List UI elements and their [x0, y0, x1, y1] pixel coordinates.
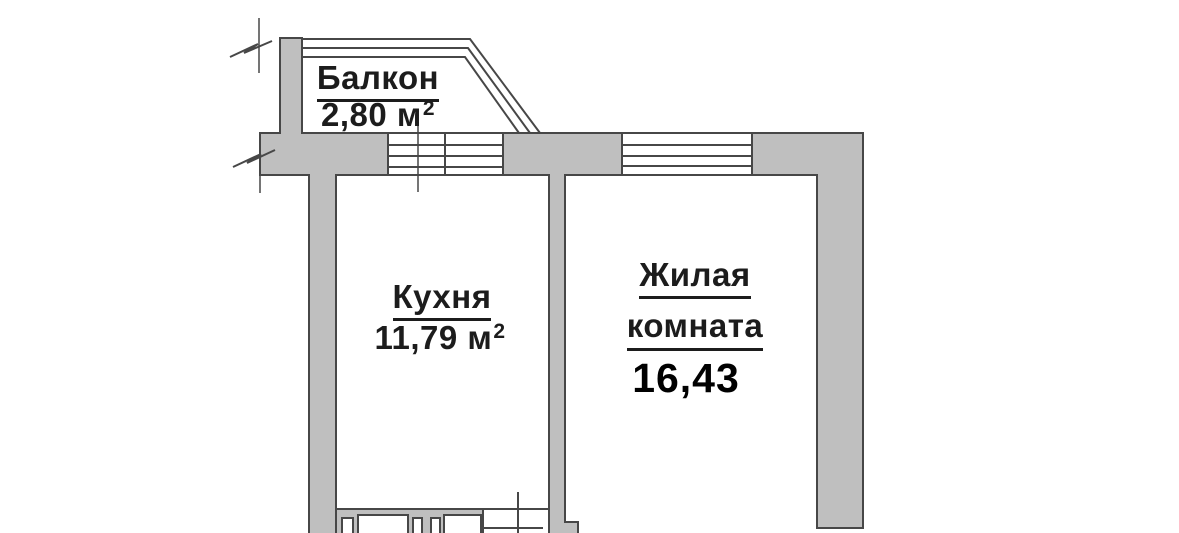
fixture-small-3	[431, 518, 440, 533]
fixture-small-2	[413, 518, 422, 533]
floor-plan: Балкон 2,80 м2 Кухня 11,79 м2 Жилая комн…	[0, 0, 1179, 533]
living-room-name-line1: Жилая	[639, 257, 750, 299]
fixture-wide-2	[444, 515, 481, 533]
fixture-wide-1	[358, 515, 408, 533]
kitchen-area-superscript: 2	[493, 320, 505, 343]
kitchen-door-lines	[483, 492, 543, 533]
living-room-label: Жилая комната	[616, 257, 774, 360]
kitchen-name-text: Кухня	[393, 279, 492, 321]
living-room-area-value: 16,43	[632, 355, 740, 401]
kitchen-label: Кухня	[378, 279, 506, 321]
living-room-area: 16,43	[616, 355, 756, 402]
living-window	[622, 133, 752, 175]
floor-plan-drawing	[0, 0, 1179, 533]
kitchen-area: 11,79 м2	[352, 320, 528, 356]
kitchen-area-unit: м	[467, 319, 492, 356]
fixture-small-1	[342, 518, 353, 533]
balcony-area-value: 2,80	[321, 96, 387, 133]
balcony-area: 2,80 м2	[312, 97, 444, 133]
break-mark-top	[230, 41, 272, 57]
balcony-area-superscript: 2	[423, 97, 435, 120]
kitchen-area-value: 11,79	[374, 319, 457, 356]
living-room-name-line2: комната	[627, 308, 764, 350]
balcony-area-unit: м	[397, 96, 422, 133]
